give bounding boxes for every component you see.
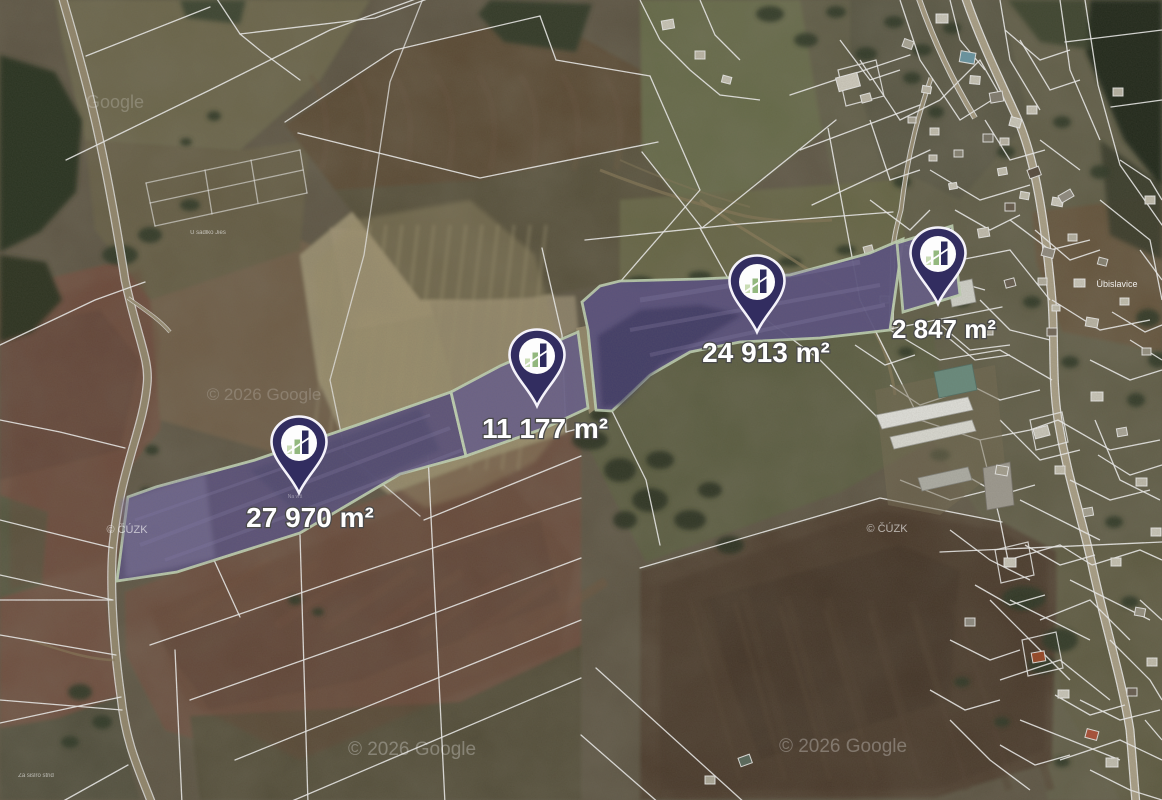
svg-text:© 2026 Google: © 2026 Google bbox=[779, 736, 907, 757]
svg-text:Na vrš: Na vrš bbox=[288, 494, 303, 500]
svg-text:© 2026 Google: © 2026 Google bbox=[348, 739, 476, 760]
svg-text:© ČÚZK: © ČÚZK bbox=[866, 522, 908, 535]
svg-text:Úbislavice: Úbislavice bbox=[1096, 279, 1137, 289]
svg-text:© ČÚZK: © ČÚZK bbox=[106, 523, 148, 536]
svg-text:27 970 m²: 27 970 m² bbox=[246, 502, 374, 533]
svg-text:Za sislro strid: Za sislro strid bbox=[18, 773, 54, 779]
svg-text:11 177 m²: 11 177 m² bbox=[482, 413, 608, 444]
svg-text:24 913 m²: 24 913 m² bbox=[702, 337, 830, 368]
svg-text:© 2026 Google: © 2026 Google bbox=[207, 385, 322, 404]
svg-text:2 847 m²: 2 847 m² bbox=[892, 314, 996, 344]
svg-text:U sadlko Jies: U sadlko Jies bbox=[190, 230, 226, 236]
svg-text:Google: Google bbox=[86, 92, 144, 112]
